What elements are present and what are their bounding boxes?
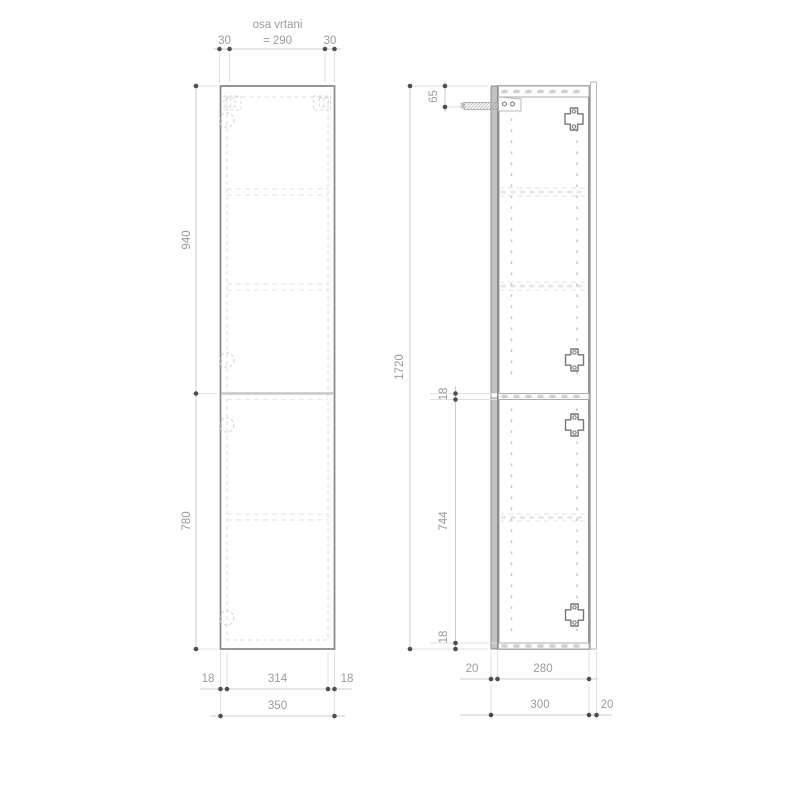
total-depth-label: 300 [530, 699, 549, 711]
middle-divider-panel [499, 394, 590, 400]
lower-door-height-label: 780 [181, 511, 193, 530]
hanging-screw-icon [461, 103, 498, 110]
side-left-dimensions: 1720 65 18 744 18 [394, 82, 497, 651]
side-panel-right-label: 18 [341, 673, 354, 685]
top-panel [499, 86, 590, 97]
bottom-panel [499, 643, 590, 649]
total-width-label: 350 [268, 700, 287, 712]
total-height-label: 1720 [394, 354, 406, 380]
drill-axis-value: = 290 [263, 35, 292, 47]
front-bottom-dimensions: 18 314 18 350 [200, 652, 353, 719]
side-door-slab [491, 86, 498, 649]
lower-section-height-label: 744 [438, 511, 450, 531]
drill-axis-label: osa vrtani [253, 19, 303, 31]
bracket-offset-label: 65 [428, 90, 440, 103]
technical-drawing-page: osa vrtani = 290 30 30 940 780 [0, 0, 800, 800]
side-view: 1720 65 18 744 18 [394, 82, 613, 719]
front-view: osa vrtani = 290 30 30 940 780 [181, 19, 353, 719]
wall-bracket-icon [499, 97, 522, 111]
body-depth-label: 280 [533, 663, 552, 675]
drill-offset-right-label: 30 [324, 35, 337, 47]
side-panel-left-label: 18 [202, 673, 215, 685]
upper-door-height-label: 940 [181, 230, 193, 249]
front-cabinet-outline [221, 86, 335, 649]
back-rail-depth-label: 20 [601, 699, 614, 711]
side-door-gap [492, 394, 498, 397]
cabinet-technical-drawing: osa vrtani = 290 30 30 940 780 [0, 0, 800, 800]
front-left-dimensions: 940 780 [181, 84, 217, 652]
back-rail [591, 82, 597, 649]
drill-offset-left-label: 30 [218, 35, 231, 47]
inner-width-label: 314 [268, 673, 288, 685]
bottom-panel-thickness-label: 18 [438, 631, 450, 644]
divider-thickness-label: 18 [438, 388, 450, 401]
side-bottom-dimensions: 20 280 300 20 [460, 652, 613, 719]
front-top-dimension: osa vrtani = 290 30 30 [213, 19, 341, 82]
door-thickness-label: 20 [466, 663, 479, 675]
